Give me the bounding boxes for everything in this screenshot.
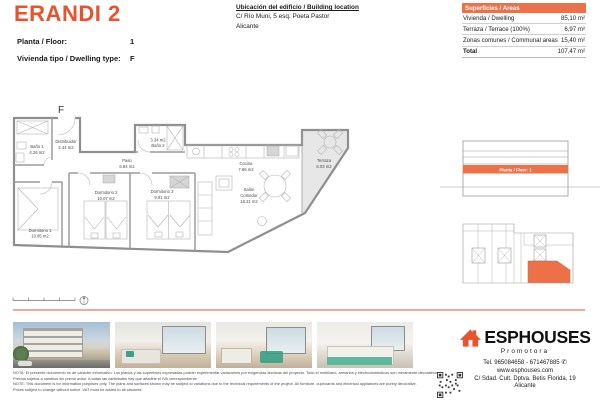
room-area: 6.84 m2 bbox=[119, 164, 135, 169]
room-label: Dormitorio 3 bbox=[151, 189, 174, 194]
disclaimer: NOTA: El presente documento es de caráct… bbox=[13, 370, 443, 393]
area-value: 85,10 m² bbox=[561, 15, 585, 22]
room-label: Dormitorio 1 bbox=[29, 228, 52, 233]
elevation-floor-label: Planta / Floor: 1 bbox=[499, 167, 532, 172]
building-location: Ubicación del edificio / Building locati… bbox=[236, 3, 359, 31]
location-title: Ubicación del edificio / Building locati… bbox=[236, 3, 359, 12]
window-shape bbox=[266, 327, 306, 354]
room-label: Paso bbox=[122, 158, 132, 163]
blanket-shape bbox=[327, 357, 392, 365]
area-row-total: Total 107,47 m² bbox=[462, 47, 586, 58]
brand-website: www.esphouses.com bbox=[452, 368, 598, 376]
areas-table: Superficies / Areas Vivienda / Dwelling … bbox=[462, 3, 586, 58]
brand-name: ESPHOUSES bbox=[484, 327, 590, 348]
room-area: 9.91 m2 bbox=[154, 195, 170, 200]
brand-tagline: Promotora bbox=[452, 348, 598, 355]
room-area: 10.07 m2 bbox=[97, 196, 115, 201]
bed3-icon bbox=[147, 176, 190, 239]
kitchen-counter bbox=[187, 145, 299, 158]
brand-block: ESPHOUSES Promotora Tel. 965084658 - 671… bbox=[452, 327, 598, 391]
brand-address: C/ Sdad. Cult. Dptva. Betis Florida, 19 bbox=[452, 376, 598, 384]
room-area: 10.85 m2 bbox=[31, 234, 49, 239]
area-row-communal: Zonas comunes / Communal areas 15,40 m² bbox=[462, 35, 586, 46]
room-area: 3.34 m2 bbox=[150, 138, 166, 143]
room-label: Dormitorio 2 bbox=[95, 190, 118, 195]
brand-city: Alicante bbox=[452, 383, 598, 391]
room-area: 7.86 m2 bbox=[238, 167, 254, 172]
terrace-area bbox=[302, 130, 348, 213]
building-elevation: Planta / Floor: 1 bbox=[440, 141, 600, 196]
bathroom1-fixtures bbox=[16, 121, 48, 162]
scale-bar bbox=[13, 298, 75, 301]
area-label: Vivienda / Dwelling bbox=[463, 15, 514, 22]
room-label: Baño 2 bbox=[151, 143, 165, 148]
dwelling-type-row: Vivienda tipo / Dwelling type: F bbox=[17, 50, 135, 67]
floor-label: Planta / Floor: bbox=[17, 37, 130, 46]
car-shape bbox=[18, 361, 33, 366]
area-row-terrace: Terraza / Terrace (100%) 6,97 m² bbox=[462, 24, 586, 35]
island-shape bbox=[221, 348, 252, 365]
plan-type-label: F bbox=[58, 105, 64, 116]
photo-dining-area bbox=[216, 322, 312, 368]
area-label: Terraza / Terrace (100%) bbox=[463, 26, 530, 33]
area-value: 15,40 m² bbox=[561, 37, 585, 44]
room-label: Baño 1 bbox=[30, 144, 44, 149]
location-city: Alicante bbox=[236, 22, 359, 31]
areas-header: Superficies / Areas bbox=[462, 3, 586, 13]
disclaimer-line: Prices subject to change without notice.… bbox=[13, 387, 443, 393]
room-label: Comedor bbox=[240, 193, 258, 198]
photo-living-room bbox=[115, 322, 211, 368]
room-label: Salón bbox=[244, 187, 255, 192]
brand-contact: Tel. 965084658 - 671467885 ✆ www.esphous… bbox=[452, 359, 598, 391]
key-plan bbox=[463, 224, 573, 283]
area-value: 6,97 m² bbox=[564, 26, 585, 33]
dwelling-type-value: F bbox=[130, 54, 135, 63]
room-label: Terraza bbox=[317, 158, 332, 163]
whatsapp-icon: ✆ bbox=[561, 359, 566, 366]
room-area: 16.21 m2 bbox=[240, 199, 258, 204]
chairs-shape bbox=[260, 351, 283, 363]
window-shape bbox=[162, 326, 206, 355]
brand-phone: Tel. 965084658 - 671467885 bbox=[483, 360, 559, 366]
photo-bedroom bbox=[317, 322, 413, 368]
area-row-dwelling: Vivienda / Dwelling 85,10 m² bbox=[462, 13, 586, 24]
room-area: 2.44 m2 bbox=[58, 145, 74, 150]
dwelling-meta: Planta / Floor: 1 Vivienda tipo / Dwelli… bbox=[17, 33, 135, 67]
total-label: Total bbox=[463, 48, 477, 55]
bed2-icon bbox=[84, 175, 127, 239]
area-label: Zonas comunes / Communal areas bbox=[463, 37, 558, 44]
disclaimer-line: NOTA: El presente documento es de caráct… bbox=[13, 370, 443, 376]
bed1-icon bbox=[18, 188, 58, 230]
page-title: ERANDI 2 bbox=[14, 1, 121, 27]
location-address: C/ Río Muni, 5 esq. Poeta Pastor bbox=[236, 12, 359, 21]
flyer-page: ERANDI 2 Planta / Floor: 1 Vivienda tipo… bbox=[0, 0, 600, 400]
building-shape bbox=[23, 328, 83, 358]
cushion-shape bbox=[126, 351, 135, 357]
north-compass-icon bbox=[80, 296, 88, 305]
esphouses-house-icon bbox=[459, 328, 482, 348]
total-value: 107,47 m² bbox=[558, 48, 585, 55]
floor-row: Planta / Floor: 1 bbox=[17, 33, 135, 50]
floor-value: 1 bbox=[130, 37, 134, 46]
floor-plan: F Baño 1 4.26 m2 Distribuidor 2.44 m2 Pa… bbox=[0, 85, 600, 315]
room-label: Distribuidor bbox=[55, 139, 77, 144]
room-area: 6.03 m2 bbox=[316, 164, 332, 169]
room-label: Cocina bbox=[239, 161, 253, 166]
dwelling-type-label: Vivienda tipo / Dwelling type: bbox=[17, 54, 130, 63]
photo-building-exterior bbox=[13, 322, 110, 368]
room-area: 4.26 m2 bbox=[29, 150, 45, 155]
